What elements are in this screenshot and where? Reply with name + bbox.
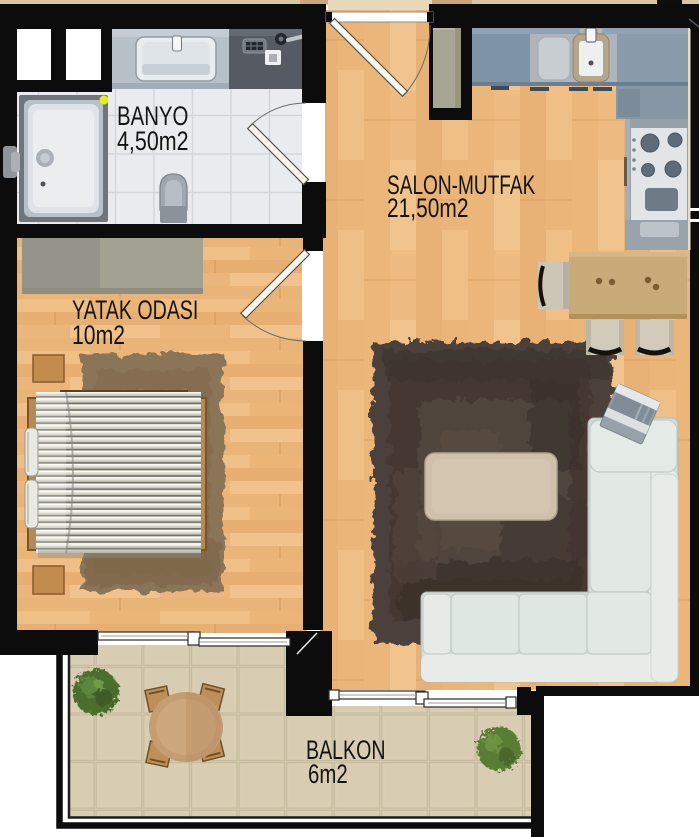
svg-text:21,50m2: 21,50m2 [387,194,468,224]
svg-text:10m2: 10m2 [72,321,125,351]
svg-text:6m2: 6m2 [308,761,348,790]
svg-text:4,50m2: 4,50m2 [117,127,189,157]
